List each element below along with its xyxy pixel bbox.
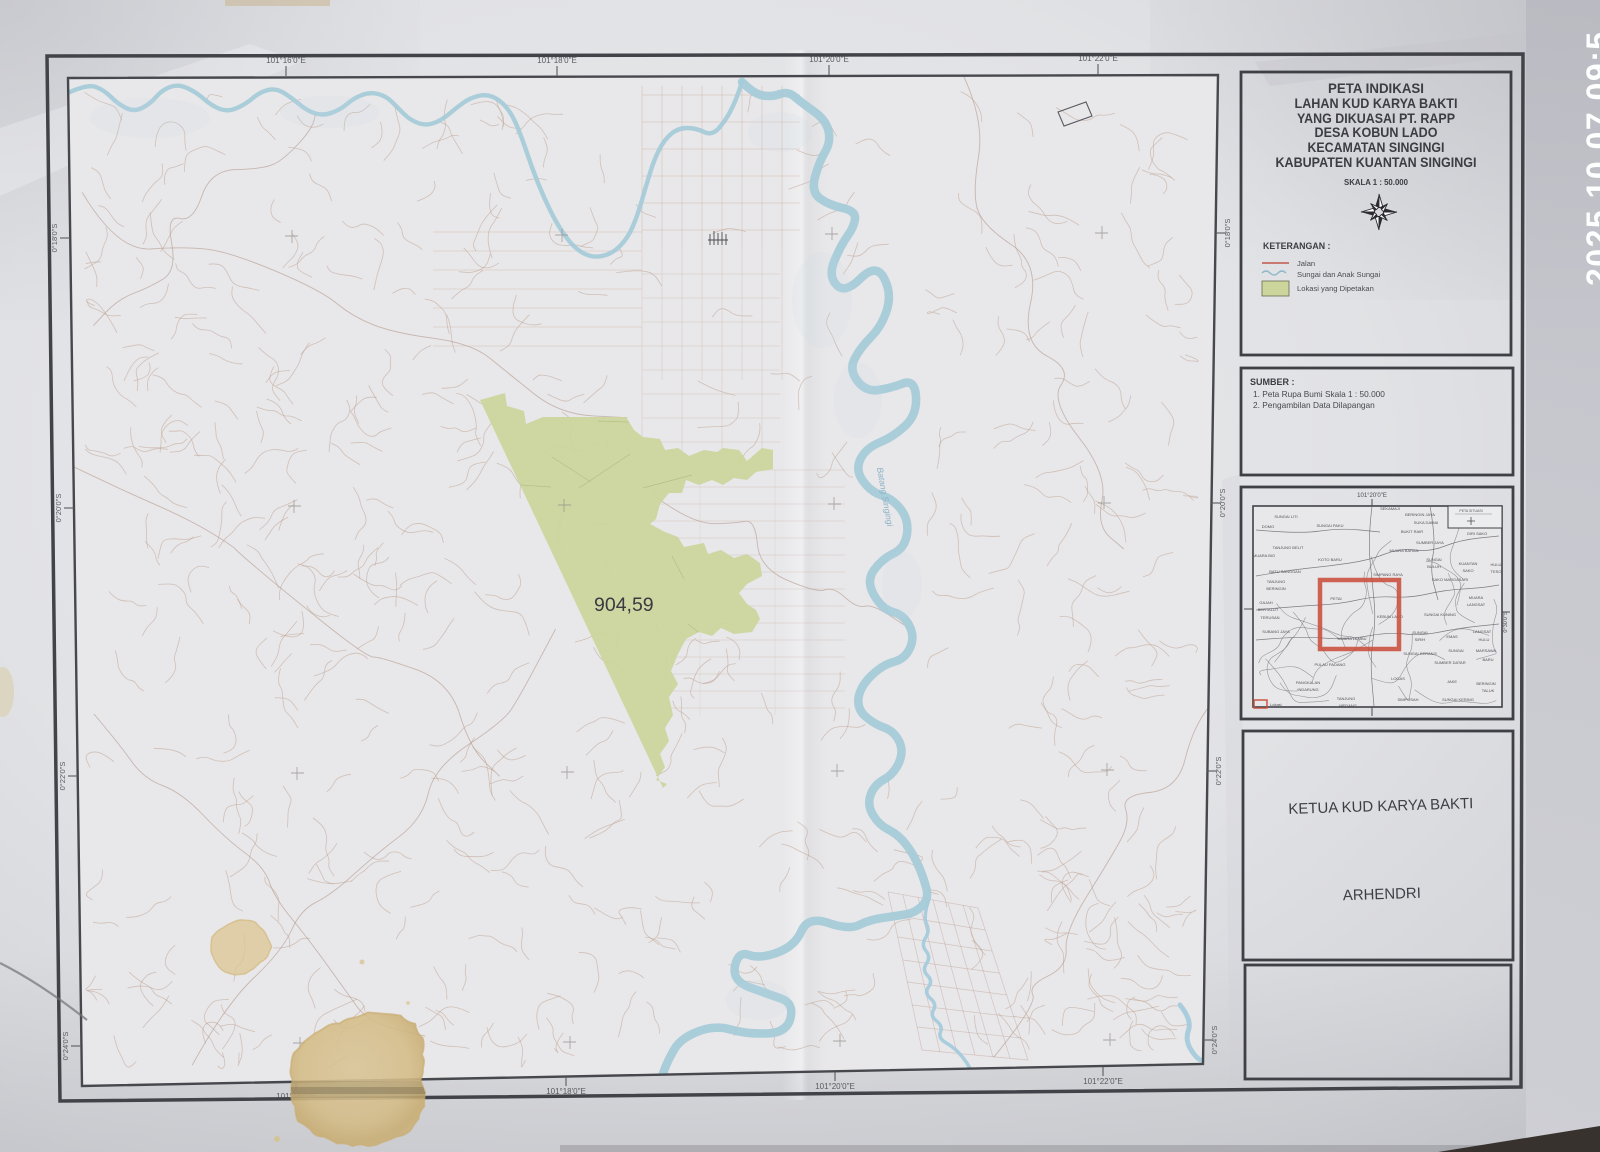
svg-text:SIMPANG RAYA: SIMPANG RAYA [1373, 572, 1403, 577]
svg-text:JAKE: JAKE [1447, 679, 1457, 684]
svg-text:SUNGAI PAKU: SUNGAI PAKU [1316, 523, 1343, 528]
svg-text:TESO: TESO [1491, 569, 1502, 574]
svg-text:101°18'0"E: 101°18'0"E [537, 56, 577, 65]
svg-text:0°24'0"S: 0°24'0"S [61, 1032, 70, 1061]
svg-text:0°22'0"S: 0°22'0"S [1214, 757, 1223, 786]
svg-text:101°22'0"E: 101°22'0"E [1083, 1077, 1123, 1086]
svg-text:BERINGIN: BERINGIN [1476, 681, 1495, 686]
svg-text:ARHENDRI: ARHENDRI [1343, 885, 1421, 904]
svg-text:SUKA DAMAI: SUKA DAMAI [1414, 520, 1438, 525]
svg-text:SKALA 1 : 50.000: SKALA 1 : 50.000 [1344, 177, 1408, 187]
svg-text:SAKO MARGASARI: SAKO MARGASARI [1432, 577, 1468, 582]
svg-text:KOTO BARU: KOTO BARU [1318, 557, 1342, 562]
svg-text:TALUK: TALUK [1482, 688, 1495, 693]
svg-text:EMAS: EMAS [1446, 634, 1458, 639]
svg-text:DESA KOBUN LADO: DESA KOBUN LADO [1315, 124, 1438, 140]
svg-text:Sungai dan Anak Sungai: Sungai dan Anak Sungai [1297, 270, 1380, 279]
svg-text:PETAI: PETAI [1330, 596, 1341, 601]
svg-text:0°18'0"S: 0°18'0"S [50, 224, 59, 253]
svg-text:Lokasi: Lokasi [1270, 702, 1282, 707]
svg-text:2025.10.07 09:5: 2025.10.07 09:5 [1580, 30, 1600, 286]
svg-text:0°18'0"S: 0°18'0"S [1223, 219, 1232, 248]
svg-text:BERINGIN JAYA: BERINGIN JAYA [1405, 512, 1435, 517]
svg-text:INDARUNG: INDARUNG [1297, 687, 1318, 692]
svg-text:SUNGAI: SUNGAI [1426, 557, 1441, 562]
svg-text:SUNGAI LITI: SUNGAI LITI [1274, 514, 1297, 519]
svg-text:2. Pengambilan Data Dilapangan: 2. Pengambilan Data Dilapangan [1253, 400, 1375, 410]
svg-text:KABUPATEN KUANTAN SINGINGI: KABUPATEN KUANTAN SINGINGI [1276, 154, 1477, 170]
svg-text:101°20'0"E: 101°20'0"E [815, 1082, 855, 1091]
svg-text:PETA INDIKASI: PETA INDIKASI [1328, 80, 1424, 96]
svg-text:Jalan: Jalan [1297, 259, 1315, 268]
svg-text:0°20'0"S: 0°20'0"S [1218, 489, 1227, 518]
svg-text:PANGKALAN: PANGKALAN [1296, 680, 1320, 685]
svg-text:SUNGAI: SUNGAI [1448, 648, 1463, 653]
svg-text:LANGSAT: LANGSAT [1473, 629, 1492, 634]
svg-text:BERTALUT: BERTALUT [1258, 607, 1279, 612]
svg-text:SIMPOSAH: SIMPOSAH [1397, 697, 1418, 702]
svg-text:LOGAS: LOGAS [1391, 676, 1405, 681]
svg-text:KUANTAN: KUANTAN [1459, 561, 1478, 566]
svg-text:MEDANG: MEDANG [1339, 703, 1357, 708]
svg-text:SEKAMAJI: SEKAMAJI [1380, 506, 1400, 511]
svg-text:DOMO: DOMO [1262, 524, 1274, 529]
svg-text:101°20'0"E: 101°20'0"E [1357, 493, 1387, 499]
svg-text:SUMBER :: SUMBER : [1250, 377, 1295, 387]
svg-text:SIRIH: SIRIH [1415, 637, 1426, 642]
svg-text:HULU: HULU [1479, 637, 1490, 642]
svg-text:SUNGAI KUNING: SUNGAI KUNING [1424, 612, 1456, 617]
svg-text:PULAU PADANG: PULAU PADANG [1314, 662, 1345, 667]
svg-text:HULU: HULU [1491, 562, 1502, 567]
svg-text:0°30'0"S: 0°30'0"S [1503, 611, 1509, 632]
svg-text:TERUSAN: TERUSAN [1260, 615, 1279, 620]
svg-text:KETERANGAN :: KETERANGAN : [1263, 241, 1331, 251]
svg-text:MUARA BAHAN: MUARA BAHAN [1389, 548, 1418, 553]
svg-text:0°20'0"S: 0°20'0"S [54, 494, 63, 523]
svg-text:MUARA LEMBU: MUARA LEMBU [1337, 636, 1366, 641]
svg-text:SUNGAI KERANJI: SUNGAI KERANJI [1403, 651, 1436, 656]
svg-text:BARU: BARU [1482, 657, 1493, 662]
svg-text:904,59: 904,59 [594, 594, 654, 616]
svg-text:BERINGIN: BERINGIN [1266, 586, 1285, 591]
svg-text:GIRI SAKO: GIRI SAKO [1467, 531, 1487, 536]
svg-text:SUNGAI KERING: SUNGAI KERING [1442, 697, 1474, 702]
svg-text:SUMBER JAYA: SUMBER JAYA [1416, 540, 1444, 545]
svg-text:LANGSAT: LANGSAT [1467, 602, 1486, 607]
svg-text:SUMBER DATAR: SUMBER DATAR [1434, 660, 1465, 665]
svg-text:Lokasi yang Dipetakan: Lokasi yang Dipetakan [1297, 284, 1374, 293]
svg-text:MARSAWA: MARSAWA [1476, 648, 1497, 653]
svg-text:TANJUNG: TANJUNG [1267, 579, 1286, 584]
svg-text:BULUH: BULUH [1427, 564, 1441, 569]
svg-text:TANJUNG BELIT: TANJUNG BELIT [1273, 545, 1304, 550]
svg-text:0°22'0"S: 0°22'0"S [58, 762, 67, 791]
svg-text:1. Peta Rupa Bumi Skala 1 : 50: 1. Peta Rupa Bumi Skala 1 : 50.000 [1253, 389, 1385, 399]
svg-text:BATU SANGGAN: BATU SANGGAN [1269, 569, 1301, 574]
svg-text:SUNGAI: SUNGAI [1412, 630, 1427, 635]
svg-text:BUKIT RAIR: BUKIT RAIR [1401, 529, 1423, 534]
svg-text:GAJAH: GAJAH [1259, 600, 1272, 605]
svg-text:LAHAN KUD KARYA BAKTI: LAHAN KUD KARYA BAKTI [1295, 95, 1458, 111]
svg-text:0°24'0"S: 0°24'0"S [1210, 1026, 1219, 1055]
svg-text:MUARA: MUARA [1469, 595, 1484, 600]
svg-text:KECAMATAN SINGINGI: KECAMATAN SINGINGI [1308, 139, 1445, 155]
svg-text:SUBANG JAYA: SUBANG JAYA [1262, 629, 1290, 634]
svg-text:PETA SITUASI: PETA SITUASI [1459, 509, 1482, 513]
svg-text:SAKO: SAKO [1462, 568, 1473, 573]
svg-text:TANJUNG: TANJUNG [1337, 696, 1356, 701]
svg-text:MUARA BIO: MUARA BIO [1253, 553, 1275, 558]
